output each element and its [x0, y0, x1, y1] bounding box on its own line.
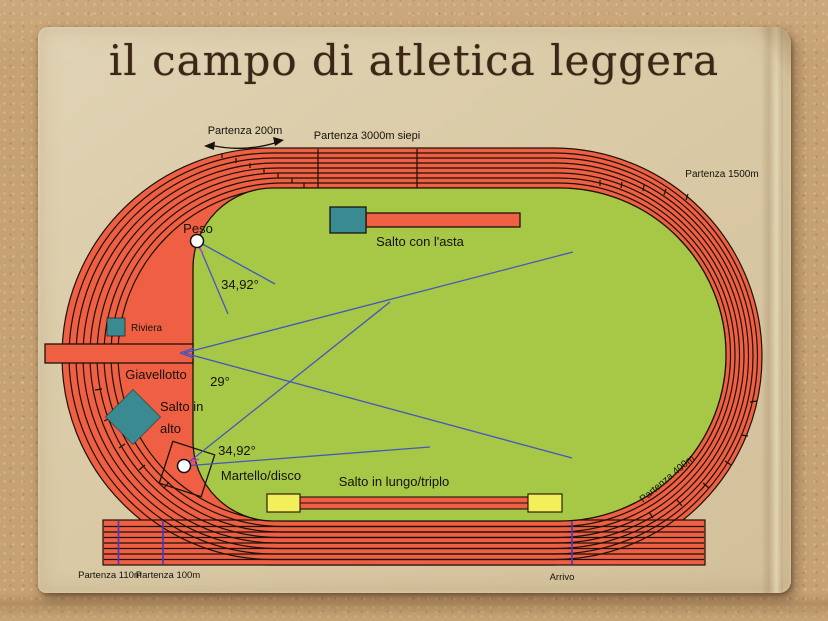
label-partenza-200m: Partenza 200m	[208, 125, 283, 137]
javelin-runway	[45, 344, 193, 363]
label-arrivo: Arrivo	[550, 572, 575, 583]
label-partenza-3000m: Partenza 3000m siepi	[314, 130, 420, 142]
riviera-water-pit	[107, 318, 125, 336]
label-giavellotto: Giavellotto	[125, 367, 186, 382]
long-jump-area	[267, 494, 562, 512]
label-salto-alto-1: Salto in	[160, 399, 203, 414]
label-martello-angle: 34,92°	[218, 443, 256, 458]
label-salto-alto-2: alto	[160, 421, 181, 436]
label-partenza-110m: Partenza 110m	[78, 570, 142, 581]
athletics-field-diagram: Partenza 200m Partenza 3000m siepi Parte…	[0, 0, 828, 621]
shot-put-circle	[191, 235, 204, 248]
sprint-straight-lane-lines	[104, 527, 704, 560]
label-salto-lungo: Salto in lungo/triplo	[339, 474, 450, 489]
label-peso-angle: 34,92°	[221, 277, 259, 292]
poster-canvas: il campo di atletica leggera	[0, 0, 828, 621]
label-salto-asta: Salto con l'asta	[376, 234, 465, 249]
pole-vault-pad	[330, 207, 366, 233]
hammer-discus-circle	[178, 460, 191, 473]
label-martello-disco: Martello/disco	[221, 468, 301, 483]
label-partenza-1500m: Partenza 1500m	[685, 169, 758, 180]
label-giavellotto-angle: 29°	[210, 374, 230, 389]
label-peso: Peso	[183, 221, 213, 236]
takeoff-board-left	[267, 494, 300, 512]
takeoff-board-right	[528, 494, 562, 512]
pole-vault-runway	[366, 213, 520, 227]
label-riviera: Riviera	[131, 323, 163, 334]
label-partenza-100m: Partenza 100m	[136, 570, 201, 581]
